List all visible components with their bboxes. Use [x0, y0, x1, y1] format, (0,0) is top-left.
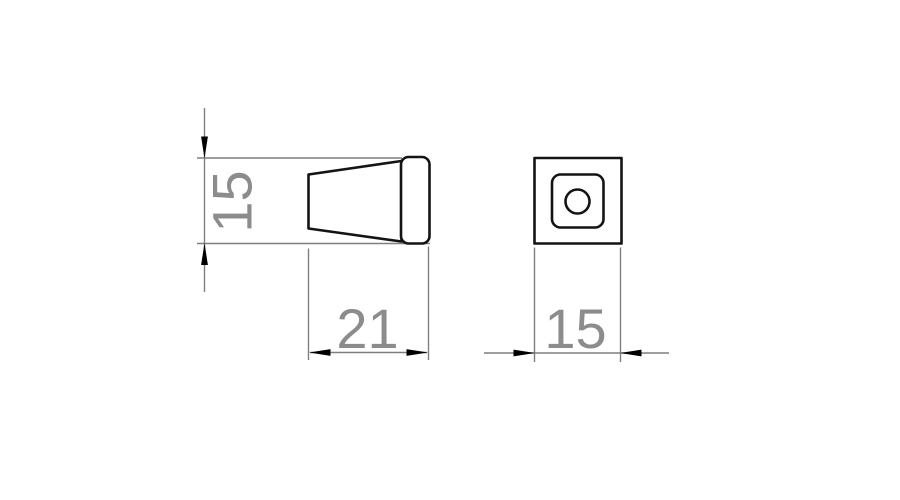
arrowhead-up [201, 243, 208, 265]
drawing-area: 15 21 15 [0, 0, 900, 500]
arrowhead-inward-left [620, 350, 642, 357]
end-collar-outline [401, 157, 430, 244]
dimension-label-side-height: 15 [201, 170, 264, 232]
arrowhead-inward-right [514, 350, 536, 357]
dimension-label-side-length: 21 [336, 297, 398, 360]
center-hole [566, 190, 590, 214]
arrowhead-left [309, 349, 331, 356]
arrowhead-right [407, 349, 429, 356]
arrowhead-down [201, 137, 208, 159]
dimension-label-front-width: 15 [544, 297, 606, 360]
front-view: 15 [484, 158, 669, 362]
tapered-body-outline [309, 161, 402, 242]
side-view: 15 21 [197, 108, 430, 360]
technical-drawing-canvas: 15 21 15 [0, 0, 900, 500]
